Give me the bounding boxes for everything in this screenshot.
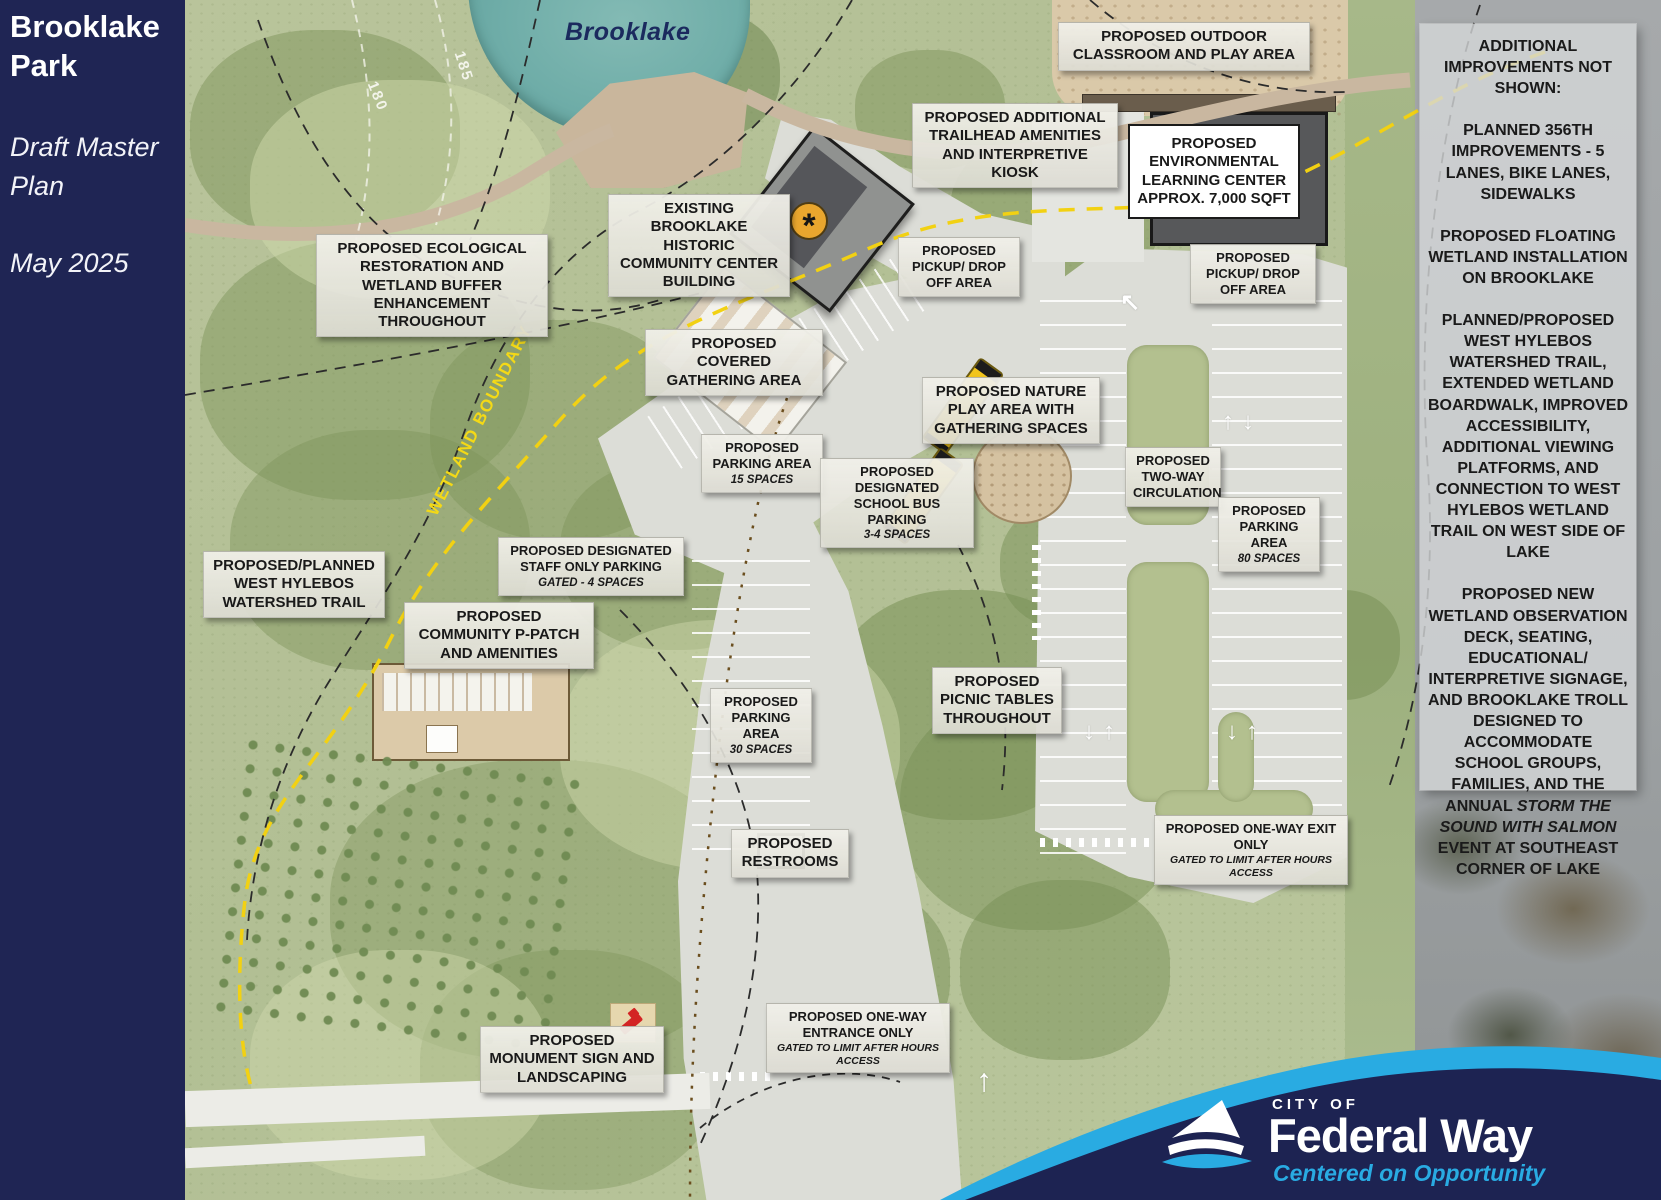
brooklake-master-plan: * ↑ ↓ ↓ ↑ ↓ ↑: [0, 0, 1661, 1200]
direction-arrow-down: ↓: [1242, 408, 1254, 436]
label-two-way-circulation: PROPOSED TWO-WAY CIRCULATION: [1125, 447, 1221, 507]
side-panel-title: ADDITIONAL IMPROVEMENTS NOT SHOWN:: [1428, 36, 1628, 99]
label-nature-play: PROPOSED NATURE PLAY AREA WITH GATHERING…: [922, 377, 1100, 444]
label-parking-30: PROPOSED PARKING AREA30 SPACES: [710, 688, 812, 763]
fence-line: [690, 398, 787, 1200]
label-one-way-entrance: PROPOSED ONE-WAY ENTRANCE ONLYGATED TO L…: [766, 1003, 950, 1073]
wetland-boundary-line: [240, 52, 1545, 1090]
side-panel: ADDITIONAL IMPROVEMENTS NOT SHOWN: PLANN…: [1420, 24, 1636, 790]
label-trailhead-amenities: PROPOSED ADDITIONAL TRAILHEAD AMENITIES …: [912, 103, 1118, 188]
label-school-bus-parking: PROPOSED DESIGNATED SCHOOL BUS PARKING3-…: [820, 458, 974, 548]
logo-federal-way: Federal Way: [1268, 1108, 1532, 1163]
direction-arrow-up: ↑: [1246, 718, 1258, 746]
label-community-p-patch: PROPOSED COMMUNITY P-PATCH AND AMENITIES: [404, 602, 594, 669]
label-west-hylebos-trail: PROPOSED/PLANNED WEST HYLEBOS WATERSHED …: [203, 551, 385, 618]
label-restrooms: PROPOSED RESTROOMS: [731, 829, 849, 878]
label-monument-sign: PROPOSED MONUMENT SIGN AND LANDSCAPING: [480, 1026, 664, 1093]
label-picnic-tables: PROPOSED PICNIC TABLES THROUGHOUT: [932, 667, 1062, 734]
label-pickup-dropoff-west: PROPOSED PICKUP/ DROP OFF AREA: [898, 237, 1020, 297]
label-parking-80: PROPOSED PARKING AREA80 SPACES: [1218, 497, 1320, 572]
label-one-way-exit: PROPOSED ONE-WAY EXIT ONLYGATED TO LIMIT…: [1154, 815, 1348, 885]
gate-arc-dashed: [700, 1074, 900, 1128]
plan-title: Brooklake Park: [10, 8, 175, 86]
side-panel-paragraph: PLANNED/PROPOSED WEST HYLEBOS WATERSHED …: [1428, 310, 1628, 563]
plan-date: May 2025: [10, 248, 129, 279]
direction-arrow-down: ↓: [1083, 718, 1095, 746]
lake-trail: [185, 130, 612, 234]
direction-arrow-up: ↖: [1120, 288, 1140, 317]
logo-tagline: Centered on Opportunity: [1273, 1160, 1545, 1187]
label-ecological-restoration: PROPOSED ECOLOGICAL RESTORATION AND WETL…: [316, 234, 548, 337]
contour-line: [435, 0, 451, 225]
side-panel-paragraphs: PLANNED 356TH IMPROVEMENTS - 5 LANES, BI…: [1428, 120, 1628, 880]
label-existing-community-center: EXISTING BROOKLAKE HISTORIC COMMUNITY CE…: [608, 194, 790, 297]
label-parking-15: PROPOSED PARKING AREA15 SPACES: [701, 434, 823, 493]
label-pickup-dropoff-east: PROPOSED PICKUP/ DROP OFF AREA: [1190, 244, 1316, 304]
lake-name-label: Brooklake: [565, 18, 690, 47]
direction-arrow-up: ↑: [1222, 408, 1234, 436]
title-panel: Brooklake Park Draft Master Plan May 202…: [0, 0, 185, 1200]
side-panel-paragraph: PROPOSED NEW WETLAND OBSERVATION DECK, S…: [1428, 584, 1628, 880]
label-covered-gathering: PROPOSED COVERED GATHERING AREA: [645, 329, 823, 396]
label-staff-parking: PROPOSED DESIGNATED STAFF ONLY PARKINGGA…: [498, 537, 684, 596]
label-environmental-learning-center: PROPOSED ENVIRONMENTAL LEARNING CENTER A…: [1128, 124, 1300, 219]
direction-arrow-up: ↑: [1103, 718, 1115, 746]
plan-subtitle: Draft Master Plan: [10, 128, 180, 206]
contour-line: [352, 0, 370, 240]
side-panel-paragraph: PROPOSED FLOATING WETLAND INSTALLATION O…: [1428, 226, 1628, 289]
side-panel-paragraph: PLANNED 356TH IMPROVEMENTS - 5 LANES, BI…: [1428, 120, 1628, 204]
direction-arrow-down: ↓: [1226, 718, 1238, 746]
label-outdoor-classroom: PROPOSED OUTDOOR CLASSROOM AND PLAY AREA: [1058, 22, 1310, 71]
federal-way-logo-icon: [1160, 1094, 1260, 1170]
